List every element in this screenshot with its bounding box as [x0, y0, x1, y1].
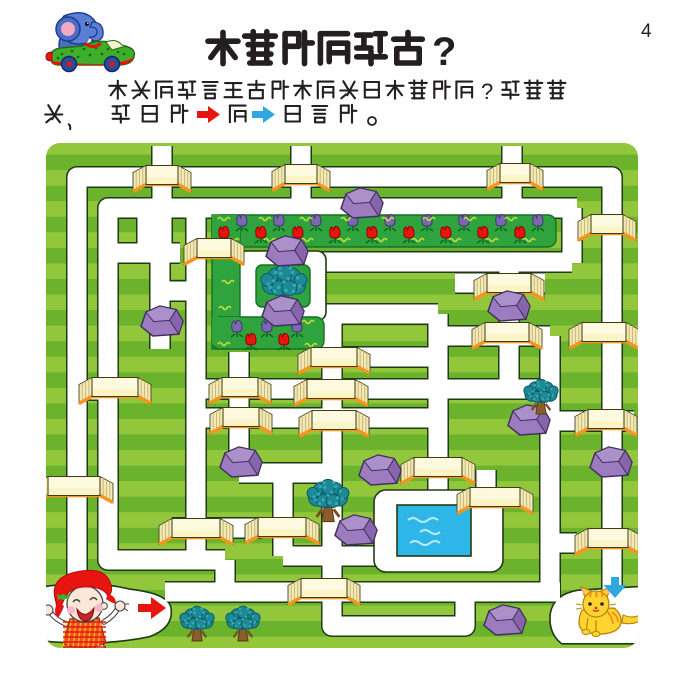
svg-text:4: 4	[641, 21, 652, 42]
svg-text:?: ?	[481, 79, 493, 104]
svg-text:?: ?	[432, 30, 456, 74]
